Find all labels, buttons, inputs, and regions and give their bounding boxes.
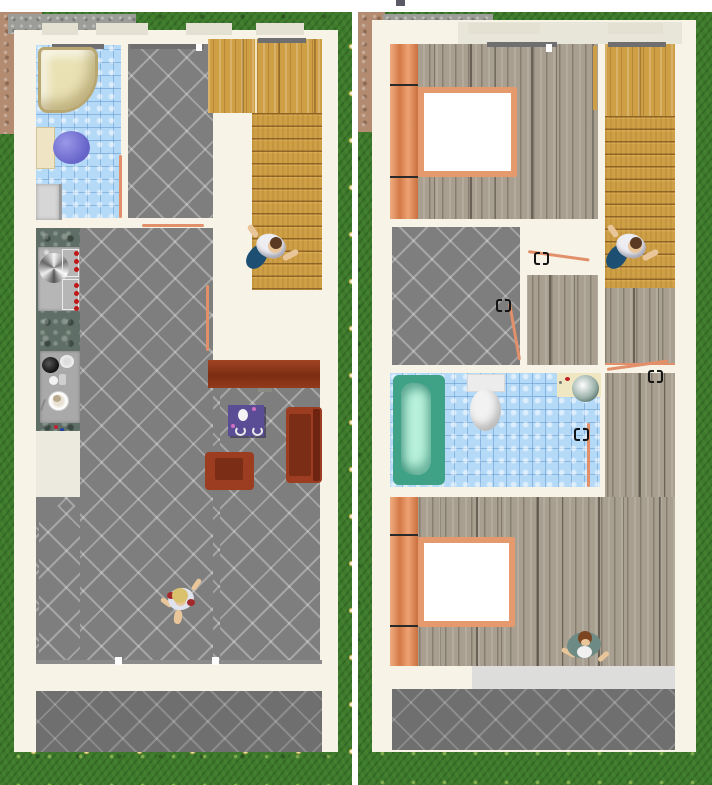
hall-living-door-open[interactable] <box>142 224 204 227</box>
armchair-seat <box>215 458 243 480</box>
wardrobe[interactable] <box>390 86 418 176</box>
stove-knob <box>74 306 79 311</box>
washing-machine[interactable] <box>36 184 62 220</box>
person-arm <box>607 224 620 239</box>
person-hair <box>172 588 188 603</box>
landing-seam <box>255 39 257 113</box>
sideboard-handle <box>258 388 272 392</box>
person-in-bedroom[interactable] <box>561 628 611 670</box>
person-shirt <box>577 646 592 658</box>
hall-door-tick <box>196 44 202 51</box>
wardrobe[interactable] <box>390 178 418 219</box>
window-gap <box>256 23 304 35</box>
wardrobe[interactable] <box>390 627 418 666</box>
armchair[interactable] <box>205 452 254 490</box>
window-gap <box>468 23 540 34</box>
soap-small <box>559 381 562 384</box>
wardrobe[interactable] <box>390 44 418 84</box>
mixer <box>49 376 58 385</box>
hallway-floor <box>605 373 675 512</box>
stove-knob <box>74 291 79 296</box>
white-plate <box>60 355 74 368</box>
landing-window-lintel <box>258 38 306 43</box>
bed-south-mattress <box>424 543 509 621</box>
bathtub-basin <box>401 383 431 475</box>
terrace-floor <box>36 691 322 752</box>
stove-knob <box>74 283 79 288</box>
table-cup <box>252 426 263 436</box>
person-hair <box>270 237 282 249</box>
sofa-back <box>313 409 320 481</box>
south-window-wall <box>36 660 322 664</box>
sofa[interactable] <box>286 407 322 483</box>
door-swing-mark <box>496 299 511 312</box>
toilet-bowl[interactable] <box>470 389 501 431</box>
vanity-basin <box>572 375 599 402</box>
table-cup <box>235 426 246 436</box>
window-tick <box>546 44 552 52</box>
living-stairs-door-open[interactable] <box>206 285 209 351</box>
landing-window-lintel <box>608 42 666 47</box>
table-dot-pink <box>252 407 256 411</box>
soap-red <box>565 377 570 381</box>
person-arm <box>247 224 260 239</box>
sink-stove-unit[interactable] <box>38 247 80 311</box>
upper-floor-view <box>358 0 712 785</box>
hall-window-lintel <box>130 44 204 49</box>
person-arm <box>191 578 203 592</box>
stove-knob <box>74 299 79 304</box>
person-hair <box>630 237 642 249</box>
door-swing-mark <box>574 428 589 441</box>
ground-floor-view <box>0 0 352 785</box>
sideboard-table[interactable] <box>208 360 320 388</box>
coffee-table[interactable] <box>228 405 264 436</box>
open-door-sliver <box>593 46 597 110</box>
table-toy <box>238 409 248 421</box>
living-room-floor <box>36 497 80 660</box>
hallway-floor <box>527 275 598 365</box>
entry-hall-floor <box>128 44 213 218</box>
aerial-house-views <box>0 0 712 785</box>
table-dot-pink <box>231 424 235 428</box>
window-tick <box>212 657 219 665</box>
person-walking[interactable] <box>160 580 204 626</box>
stove-knob <box>74 259 79 264</box>
window-gap <box>42 23 78 35</box>
wardrobe[interactable] <box>390 536 418 625</box>
person-arm <box>597 650 610 662</box>
prep-counter[interactable] <box>40 351 80 423</box>
person-leg <box>173 610 183 625</box>
jug <box>59 374 66 385</box>
stair-landing <box>208 39 322 113</box>
door-swing-mark <box>648 370 663 383</box>
person-face <box>581 639 590 646</box>
bathtub[interactable] <box>393 375 445 485</box>
person-on-stairs[interactable] <box>246 226 302 276</box>
stair-landing <box>605 44 675 116</box>
black-pot <box>42 357 59 373</box>
terrace-floor <box>392 689 675 750</box>
person-on-stairs[interactable] <box>606 226 662 276</box>
window-gap <box>608 23 663 34</box>
den-floor <box>392 227 520 365</box>
bed-north-mattress <box>424 93 511 171</box>
sofa-seat <box>289 414 311 476</box>
hall-floor-upper <box>605 288 675 365</box>
base-cabinet[interactable] <box>36 431 83 497</box>
stove-knob <box>74 251 79 256</box>
window-gap <box>186 23 232 35</box>
toilet-bowl[interactable] <box>53 131 90 164</box>
window-gap <box>96 23 148 35</box>
window-tick <box>115 657 122 665</box>
door-swing-mark <box>534 252 549 265</box>
bathroom-door-open[interactable] <box>119 155 122 218</box>
stove-knob <box>74 267 79 272</box>
fork <box>40 399 46 411</box>
spice-red <box>54 425 58 429</box>
wardrobe[interactable] <box>390 497 418 534</box>
person-sleeve <box>187 599 195 606</box>
cake <box>53 395 61 402</box>
